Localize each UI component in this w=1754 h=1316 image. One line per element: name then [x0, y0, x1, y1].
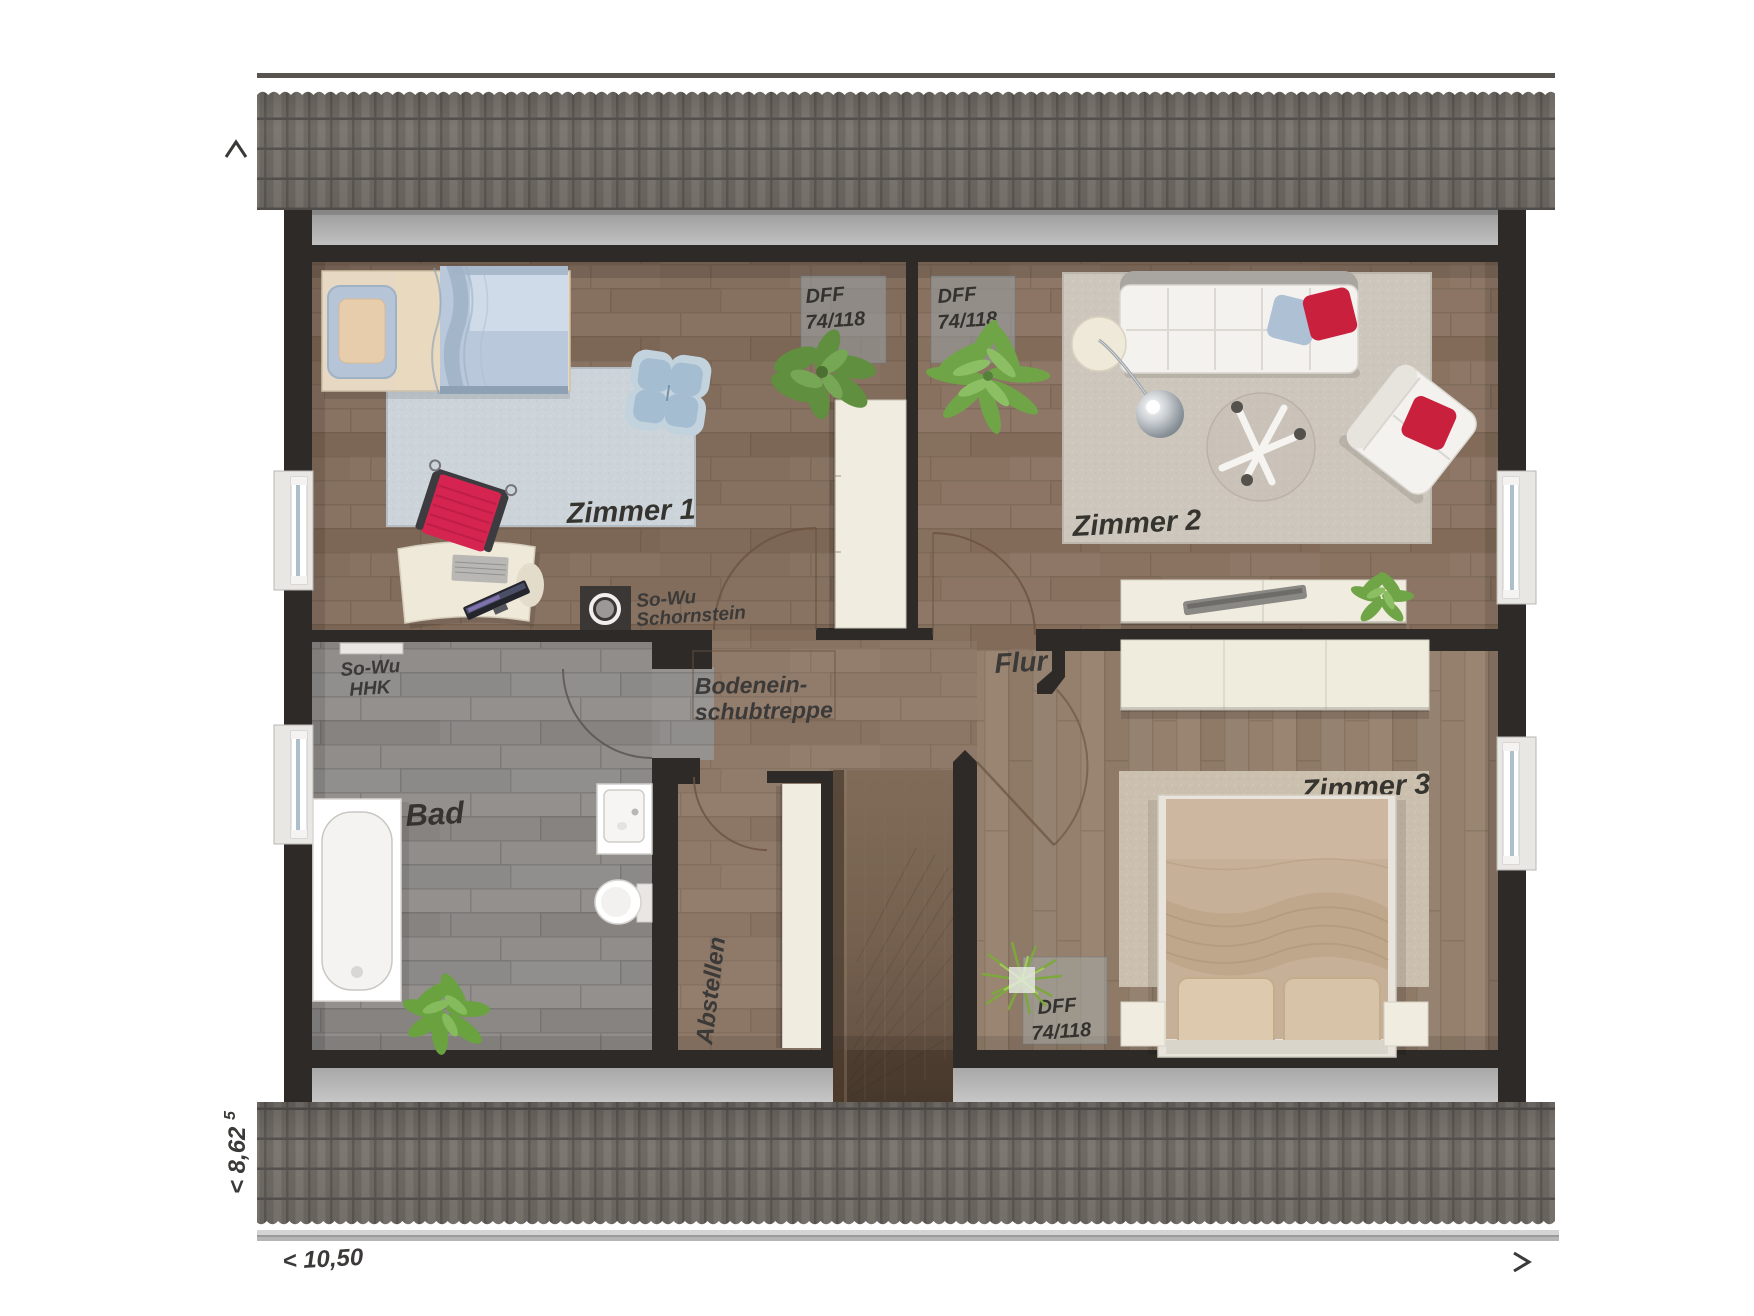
svg-text:schubtreppe: schubtreppe: [695, 697, 834, 725]
svg-text:Flur: Flur: [994, 645, 1051, 679]
svg-text:< 8,62: < 8,62: [224, 1126, 251, 1194]
svg-text:Zimmer 2: Zimmer 2: [1071, 504, 1202, 543]
svg-text:So-Wu: So-Wu: [340, 656, 402, 681]
svg-text:Bad: Bad: [405, 795, 466, 833]
svg-text:HHK: HHK: [349, 677, 393, 701]
svg-text:5: 5: [222, 1110, 239, 1120]
svg-text:DFF: DFF: [805, 283, 846, 308]
svg-text:< 10,50: < 10,50: [282, 1244, 365, 1275]
svg-text:74/118: 74/118: [1031, 1019, 1093, 1045]
svg-text:DFF: DFF: [937, 283, 978, 308]
svg-text:Zimmer 1: Zimmer 1: [565, 494, 696, 531]
svg-text:Bodenein-: Bodenein-: [695, 671, 808, 699]
svg-text:DFF: DFF: [1037, 994, 1078, 1019]
